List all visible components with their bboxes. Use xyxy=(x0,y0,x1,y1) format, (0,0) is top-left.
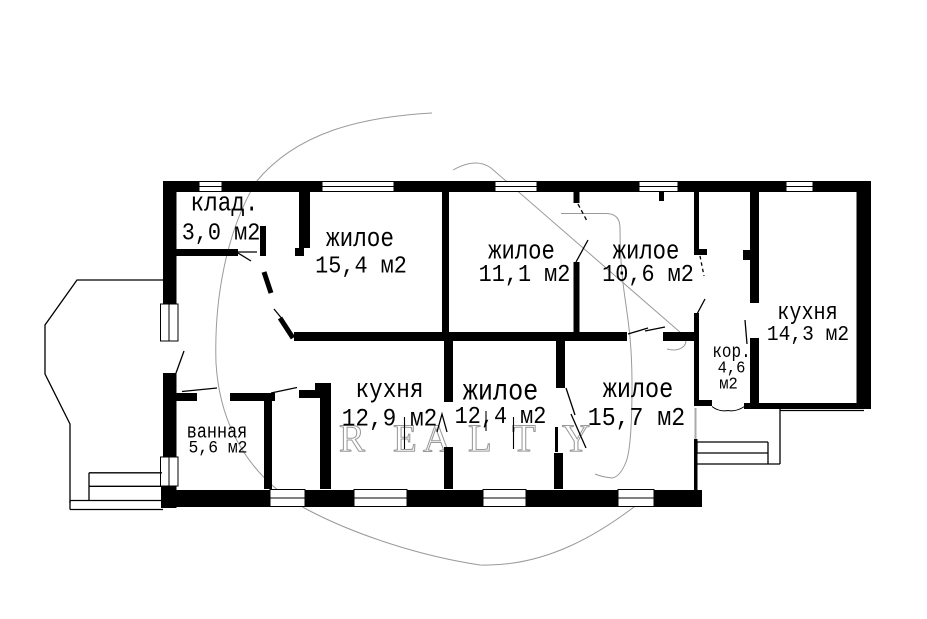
svg-text:клад.: клад. xyxy=(190,189,258,219)
svg-text:5,6 м2: 5,6 м2 xyxy=(189,439,248,459)
svg-text:12,9 м2: 12,9 м2 xyxy=(342,406,438,434)
svg-text:жилое: жилое xyxy=(603,373,674,405)
svg-text:14,3 м2: 14,3 м2 xyxy=(767,323,849,347)
svg-text:15,7 м2: 15,7 м2 xyxy=(588,405,685,433)
svg-text:3,0 м2: 3,0 м2 xyxy=(182,220,261,247)
svg-text:кухня: кухня xyxy=(355,375,423,405)
svg-text:11,1 м2: 11,1 м2 xyxy=(479,261,571,288)
svg-text:м2: м2 xyxy=(719,374,738,394)
svg-text:12,4 м2: 12,4 м2 xyxy=(455,403,547,430)
svg-text:10,6 м2: 10,6 м2 xyxy=(602,261,694,288)
svg-text:жилое: жилое xyxy=(326,224,394,254)
svg-text:15,4 м2: 15,4 м2 xyxy=(315,253,407,280)
